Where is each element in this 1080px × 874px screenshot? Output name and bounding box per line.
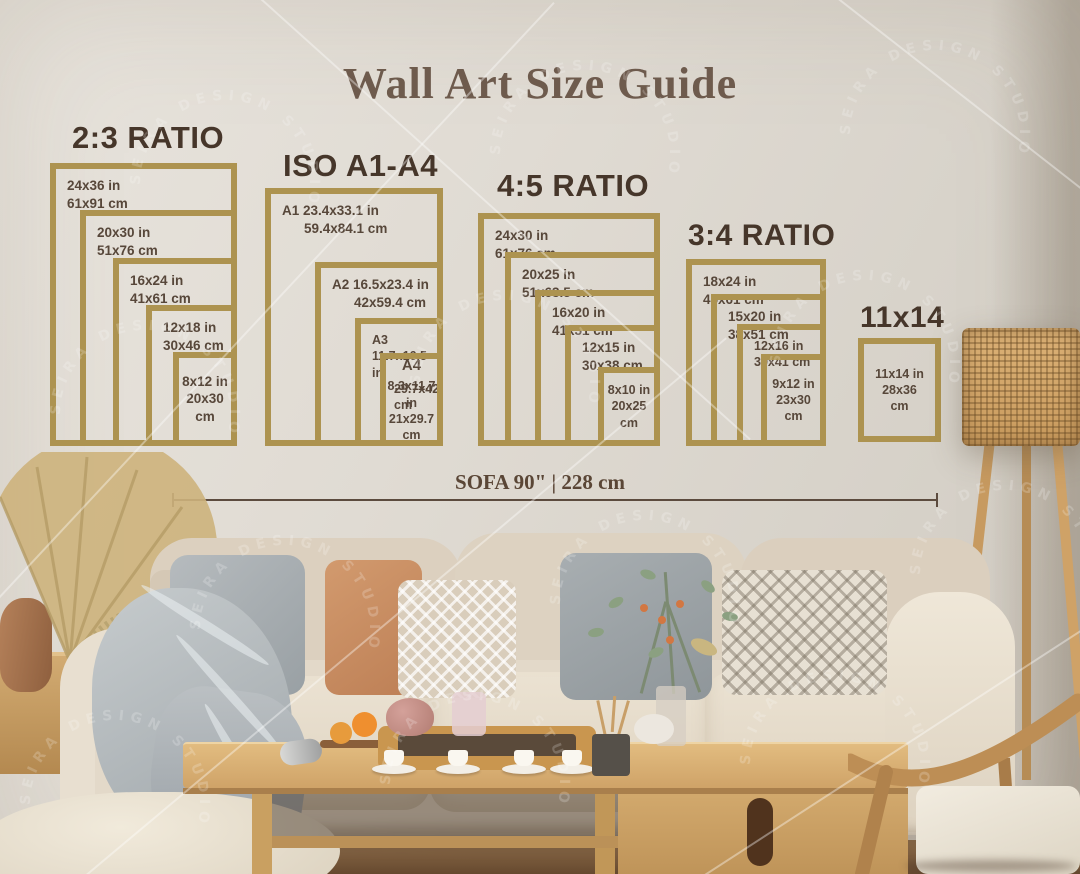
measure-tick-right (936, 493, 938, 507)
orange-fruit (352, 712, 377, 737)
teacup (562, 750, 582, 766)
frame-label: A2 16.5x23.4 in42x59.4 cm (332, 276, 429, 311)
page-title: Wall Art Size Guide (0, 58, 1080, 109)
frame-label: 12x18 in30x46 cm (163, 319, 224, 354)
berry (666, 636, 674, 644)
table-leg (595, 792, 615, 874)
pillow-gray-textured (560, 553, 712, 700)
frame-9x12: 9x12 in23x30cm (761, 354, 826, 446)
heading-iso-a1-a4: ISO A1-A4 (283, 148, 438, 184)
orange-fruit (330, 722, 352, 744)
sofa-measure-line (172, 499, 938, 501)
heading-ratio-4-5: 4:5 RATIO (497, 168, 649, 204)
table-undershadow (272, 794, 622, 840)
table-edge (183, 788, 908, 794)
frame-label: 9x12 in23x30cm (772, 376, 814, 425)
frame-a4: A48.3x11.7 in21x29.7cm (380, 353, 443, 446)
frame-label: 24x36 in61x91 cm (67, 177, 128, 212)
frame-8x10: 8x10 in20x25cm (598, 367, 660, 446)
rattan-lamp-shade (962, 328, 1080, 446)
cabinet-handle (747, 798, 773, 866)
frame-label: 8x12 in20x30cm (182, 373, 228, 426)
frame-label: A1 23.4x33.1 in59.4x84.1 cm (282, 202, 387, 237)
berry (658, 616, 666, 624)
pillow-chevron-beige (398, 580, 516, 698)
wooden-armchair-frame (848, 692, 1080, 874)
sofa-measure-label: SOFA 90" | 228 cm (340, 470, 740, 495)
table-leg (252, 792, 272, 874)
frame-label: 16x24 in41x61 cm (130, 272, 191, 307)
teacup (514, 750, 534, 766)
table-shelf (272, 836, 622, 848)
pillow-chevron-white (722, 570, 887, 695)
tray-mat (398, 734, 576, 756)
frame-11x14: 11x14 in28x36cm (858, 338, 941, 442)
clay-teapot (386, 698, 434, 736)
heading-ratio-3-4: 3:4 RATIO (688, 219, 835, 253)
wall-art-size-guide-poster: Wall Art Size Guide 2:3 RATIO ISO A1-A4 … (0, 0, 1080, 874)
berry (676, 600, 684, 608)
teacup (448, 750, 468, 766)
heading-ratio-2-3: 2:3 RATIO (72, 120, 224, 156)
white-teapot (634, 714, 674, 744)
heading-11x14: 11x14 (860, 301, 944, 335)
utensil-holder (592, 734, 630, 776)
berry (640, 604, 648, 612)
frame-label: 20x30 in51x76 cm (97, 224, 158, 259)
frame-label: A48.3x11.7 in21x29.7cm (386, 356, 437, 444)
frame-label: 11x14 in28x36cm (875, 366, 924, 415)
glass-jar (452, 692, 486, 736)
chair-shadow (905, 860, 1077, 872)
frame-label: 8x10 in20x25cm (608, 382, 650, 431)
teacup (384, 750, 404, 766)
frame-8x12: 8x12 in20x30cm (173, 352, 237, 446)
